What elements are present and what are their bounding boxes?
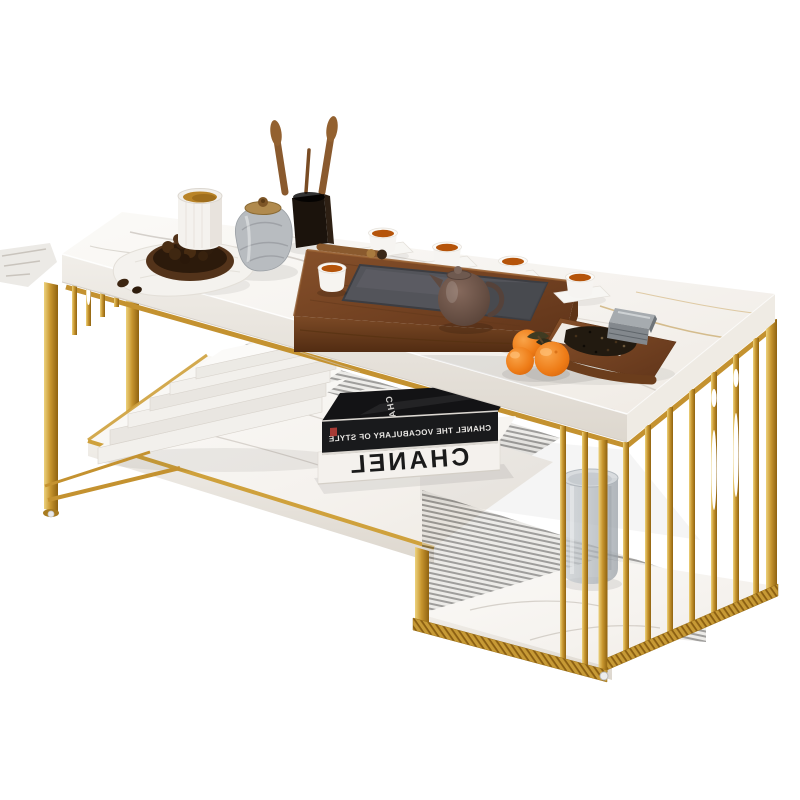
foot-cap-left [48,511,54,517]
product-photo: CHANEL CHANEL CHANEL THE VOCABULARY OF S… [0,0,800,800]
orange-right [535,342,570,377]
book-spine-logo [330,428,337,437]
glass-vase [562,469,618,584]
foot-cap [600,672,608,680]
teacup-on-tray [317,263,347,297]
orange-left [506,347,534,375]
corner-post [599,440,608,672]
coffee-table-scene: CHANEL CHANEL CHANEL THE VOCABULARY OF S… [0,0,800,800]
front-left-leg [44,282,58,512]
tea-canister [178,189,222,251]
